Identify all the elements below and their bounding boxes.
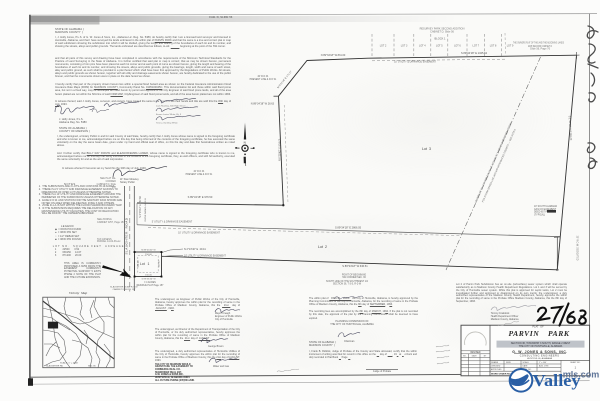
svg-text:DATE: DATE xyxy=(523,365,529,368)
svg-text:PLAT OF: PLAT OF xyxy=(532,325,544,329)
svg-text:G. W. JONES & SONS, INC.: G. W. JONES & SONS, INC. xyxy=(512,350,568,354)
svg-text:SHEET NO.: SHEET NO. xyxy=(570,362,581,364)
svg-text:CHECKED: CHECKED xyxy=(491,366,501,368)
svg-text:DRAWN: DRAWN xyxy=(491,361,499,364)
svg-text:mls.com: mls.com xyxy=(563,370,600,380)
svg-text:SLAUGHTER RD: SLAUGHTER RD xyxy=(46,365,64,368)
svg-text:AUG. 1993: AUG. 1993 xyxy=(539,365,548,368)
svg-text:NO.: NO. xyxy=(463,356,467,358)
svg-text:SMW: SMW xyxy=(506,362,511,364)
svg-text:SCALE: SCALE xyxy=(523,361,530,364)
svg-text:DATE: DATE xyxy=(472,355,478,358)
svg-text:SEC 36: SEC 36 xyxy=(88,366,96,368)
svg-text:Emma Lanier White, Rt. 3: Emma Lanier White, Rt. 3 xyxy=(156,113,182,116)
svg-text:APPROVED: APPROVED xyxy=(491,368,502,371)
svg-text:HUNTSVILLE, ALABAMA: HUNTSVILLE, ALABAMA xyxy=(527,357,552,360)
svg-text:SCALE: 1" = 2000': SCALE: 1" = 2000' xyxy=(60,362,79,365)
svg-text:REVISED: REVISED xyxy=(470,352,480,354)
svg-text:Teresa Gormley White: Teresa Gormley White xyxy=(156,122,178,125)
svg-text:CONSULTING ENGINEERS: CONSULTING ENGINEERS xyxy=(520,354,560,357)
svg-text:PARVIN PARK: PARVIN PARK xyxy=(508,329,569,338)
svg-text:WORK ORDER NO.: WORK ORDER NO. xyxy=(491,374,511,376)
svg-text:1" = 100': 1" = 100' xyxy=(539,362,547,364)
svg-text:THE CITY OF HUNTSVILLE, ALABAM: THE CITY OF HUNTSVILLE, ALABAMA xyxy=(519,345,563,348)
svg-text:Jack Rawling, 600 High Street: Jack Rawling, 600 High Street xyxy=(156,105,186,108)
